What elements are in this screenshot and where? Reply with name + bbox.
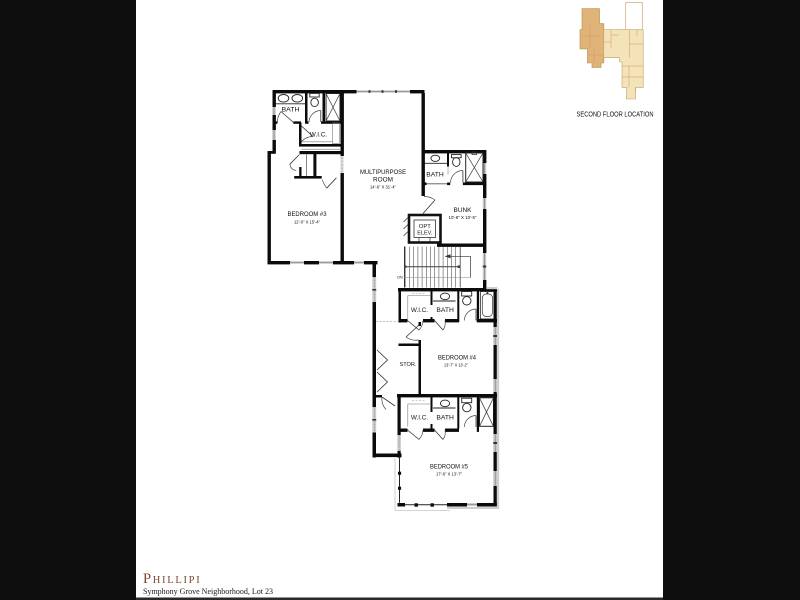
svg-text:BEDROOM #4: BEDROOM #4 bbox=[438, 355, 476, 362]
svg-text:BEDROOM #5: BEDROOM #5 bbox=[430, 464, 468, 471]
svg-text:W.I.C.: W.I.C. bbox=[310, 132, 328, 139]
svg-text:ROOM: ROOM bbox=[373, 177, 393, 184]
svg-text:W.I.C.: W.I.C. bbox=[411, 308, 428, 314]
svg-text:17'-6" X 13'-7": 17'-6" X 13'-7" bbox=[436, 472, 462, 478]
svg-text:BATH: BATH bbox=[426, 172, 444, 179]
svg-text:OPT: OPT bbox=[419, 224, 432, 230]
svg-text:DN: DN bbox=[397, 275, 403, 279]
svg-text:W.I.C.: W.I.C. bbox=[411, 416, 428, 422]
svg-text:MULTIPURPOSE: MULTIPURPOSE bbox=[360, 169, 406, 176]
svg-text:BUNK: BUNK bbox=[454, 207, 473, 214]
svg-text:BATH: BATH bbox=[282, 107, 300, 114]
svg-text:STOR.: STOR. bbox=[400, 362, 417, 368]
svg-text:12'-0" X 15'-4": 12'-0" X 15'-4" bbox=[294, 220, 320, 226]
svg-text:SECOND FLOOR LOCATION: SECOND FLOOR LOCATION bbox=[577, 112, 654, 119]
svg-text:10'-8" X 10'-5": 10'-8" X 10'-5" bbox=[449, 215, 477, 221]
svg-text:14'-6" X 31'-4": 14'-6" X 31'-4" bbox=[370, 185, 396, 191]
svg-text:BATH: BATH bbox=[436, 308, 454, 314]
svg-text:BEDROOM #3: BEDROOM #3 bbox=[288, 211, 327, 218]
svg-text:13'-7" X 13'-2": 13'-7" X 13'-2" bbox=[444, 363, 468, 369]
svg-text:BATH: BATH bbox=[436, 416, 454, 422]
svg-text:Symphony Grove Neighborhood, L: Symphony Grove Neighborhood, Lot 23 bbox=[143, 587, 273, 596]
svg-text:ELEV.: ELEV. bbox=[417, 231, 432, 237]
